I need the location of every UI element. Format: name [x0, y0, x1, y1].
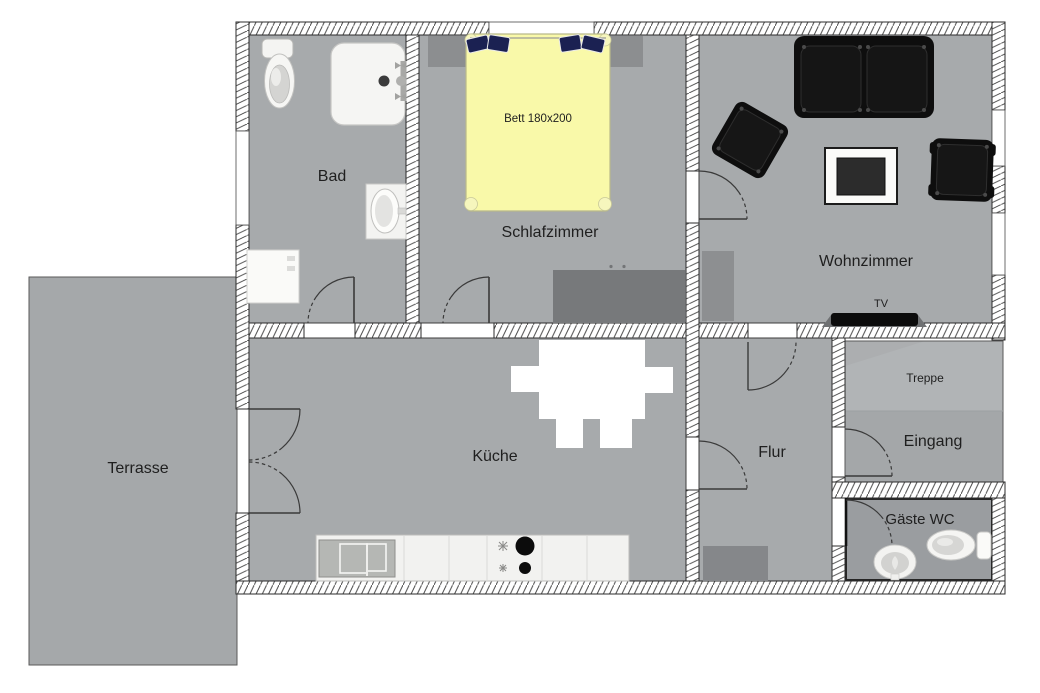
svg-text:Küche: Küche	[472, 448, 517, 465]
svg-text:Bad: Bad	[318, 168, 346, 185]
svg-text:Flur: Flur	[758, 444, 786, 461]
svg-text:Gäste WC: Gäste WC	[885, 511, 954, 528]
svg-text:Schlafzimmer: Schlafzimmer	[502, 224, 600, 241]
svg-text:Terrasse: Terrasse	[107, 460, 168, 477]
svg-text:Wohnzimmer: Wohnzimmer	[819, 253, 914, 270]
svg-text:Eingang: Eingang	[904, 433, 963, 450]
svg-text:Treppe: Treppe	[906, 371, 944, 385]
svg-text:Bett 180x200: Bett 180x200	[504, 113, 572, 125]
svg-text:TV: TV	[874, 298, 889, 310]
